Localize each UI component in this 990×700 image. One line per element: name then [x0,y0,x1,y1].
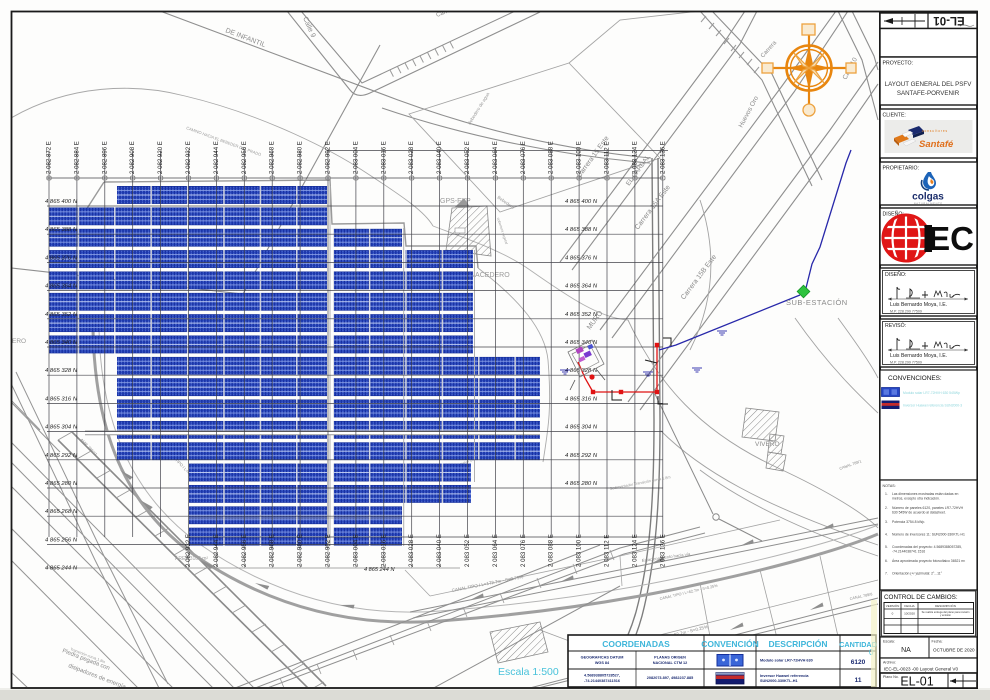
svg-text:2 082 920 E: 2 082 920 E [157,141,164,174]
svg-text:4 865 400 N: 4 865 400 N [565,199,598,205]
svg-text:WGS 84: WGS 84 [595,661,610,665]
svg-text:4.: 4. [885,533,888,537]
svg-text:2 082 992 E: 2 082 992 E [325,141,332,174]
svg-text:2 083 016 E: 2 083 016 E [380,141,387,174]
svg-text:2 083 100 E: 2 083 100 E [576,534,583,567]
svg-text:CONTROL DE CAMBIOS:: CONTROL DE CAMBIOS: [884,594,958,601]
svg-text:Fecha:: Fecha: [932,640,943,644]
svg-text:2 083 112 E: 2 083 112 E [604,142,611,174]
svg-text:metros, excepto otra indicació: metros, excepto otra indicación. [892,497,940,501]
svg-text:Escala 1:500: Escala 1:500 [498,666,559,678]
svg-text:2 083 112 E: 2 083 112 E [604,535,611,567]
svg-text:2082073.897, 4982237.885: 2082073.897, 4982237.885 [647,676,693,680]
svg-text:2 083 040 E: 2 083 040 E [436,141,443,174]
svg-text:DISEÑO:: DISEÑO: [885,271,906,278]
svg-text:4 865 268 N: 4 865 268 N [45,509,78,515]
svg-text:Número de inversores 11: SUN20: Número de inversores 11: SUN2000-330KTL-… [892,533,965,537]
svg-text:2 083 004 E: 2 083 004 E [352,534,359,567]
svg-text:2 083 028 E: 2 083 028 E [408,141,415,174]
svg-text:PLANAS ORIGEN: PLANAS ORIGEN [654,656,686,660]
svg-text:4 865 364 N: 4 865 364 N [565,284,598,290]
svg-text:Luis Bernardo Moya, I.E.: Luis Bernardo Moya, I.E. [890,353,947,359]
svg-text:2 083 016 E: 2 083 016 E [380,534,387,567]
svg-text:2 082 992 E: 2 082 992 E [325,534,332,567]
svg-text:2 083 064 E: 2 083 064 E [492,141,499,174]
svg-text:IEC-EL-0023 -00 Layout General: IEC-EL-0023 -00 Layout General V0 [884,667,958,672]
svg-text:Las dimensiones mostradas está: Las dimensiones mostradas están dadas en [892,492,958,496]
svg-text:4 865 280 N: 4 865 280 N [45,481,78,487]
svg-text:1.: 1. [885,492,888,496]
svg-text:GEOGRAFICAS DATUM: GEOGRAFICAS DATUM [581,656,624,660]
svg-text:PROPIETARIO:: PROPIETARIO: [883,166,920,172]
svg-text:3.: 3. [885,520,888,524]
svg-text:2 082 968 E: 2 082 968 E [269,534,276,567]
svg-text:4 865 292 N: 4 865 292 N [45,453,78,459]
svg-text:N A T U R A L M E N T E: N A T U R A L M E N T E [914,202,943,206]
svg-text:2 082 944 E: 2 082 944 E [213,534,220,567]
svg-text:DESCRIPCIÓN: DESCRIPCIÓN [935,603,956,608]
svg-text:2 082 980 E: 2 082 980 E [297,534,304,567]
svg-text:4 865 244 N: 4 865 244 N [45,566,78,572]
svg-text:Archivo:: Archivo: [883,661,896,665]
svg-text:LAYOUT GENERAL DEL PSFV: LAYOUT GENERAL DEL PSFV [885,81,973,88]
svg-text:4 865 244 N: 4 865 244 N [364,567,395,573]
svg-text:SUB-ESTACIÓN: SUB-ESTACIÓN [786,298,848,307]
svg-text:2 082 932 E: 2 082 932 E [185,141,192,174]
svg-text:4 865 328 N: 4 865 328 N [45,368,78,374]
svg-text:Santafé: Santafé [919,139,954,150]
svg-text:4 865 292 N: 4 865 292 N [565,453,598,459]
svg-text:2 083 040 E: 2 083 040 E [436,534,443,567]
svg-text:5.: 5. [885,545,888,549]
svg-text:SANTAFE-PORVENIR: SANTAFE-PORVENIR [897,90,960,97]
svg-text:Escala:: Escala: [883,640,895,644]
svg-text:OCTUBRE DE 2020: OCTUBRE DE 2020 [933,648,975,653]
svg-text:NA: NA [901,647,911,654]
svg-text:4 865 304 N: 4 865 304 N [45,425,78,431]
svg-text:c o n s u l t o r e s: c o n s u l t o r e s [922,129,948,133]
svg-text:2 083 028 E: 2 083 028 E [408,534,415,567]
svg-text:2 083 088 E: 2 083 088 E [548,141,555,174]
svg-text:y emisión: y emisión [940,613,952,617]
svg-text:2 082 956 E: 2 082 956 E [241,141,248,174]
svg-text:NACEDERO: NACEDERO [470,272,510,279]
svg-text:M.P. 228.299 77509: M.P. 228.299 77509 [890,310,922,314]
svg-text:4 865 352 N: 4 865 352 N [45,312,78,318]
svg-text:2.: 2. [885,506,888,510]
svg-text:4.568938805728527,: 4.568938805728527, [584,674,620,678]
svg-text:2 082 884 E: 2 082 884 E [73,141,80,174]
svg-text:EC: EC [928,220,974,257]
svg-text:2 083 076 E: 2 083 076 E [520,141,527,174]
svg-text:EL-01: EL-01 [933,14,965,26]
svg-text:2 083 136 E: 2 083 136 E [659,534,666,567]
svg-text:Número de paneles 6120, panele: Número de paneles 6120, paneles LR7-72HV… [892,506,964,510]
svg-text:2 083 064 E: 2 083 064 E [492,534,499,567]
svg-text:Modulo solar LR7-72HVH 630 545: Modulo solar LR7-72HVH 630 545Wp [903,391,960,395]
svg-text:4 865 352 N: 4 865 352 N [565,312,598,318]
svg-text:PROYECTO:: PROYECTO: [883,61,913,67]
svg-text:Plano No.: Plano No. [883,675,899,679]
svg-text:2 082 908 E: 2 082 908 E [129,141,136,174]
svg-text:4 865 388 N: 4 865 388 N [565,227,598,233]
svg-text:Inversor Huawei referencia: Inversor Huawei referencia [760,674,809,678]
svg-text:2 082 968 E: 2 082 968 E [269,141,276,174]
svg-text:NACIONAL CTM 12: NACIONAL CTM 12 [653,661,688,665]
svg-text:COORDENADAS: COORDENADAS [602,639,670,649]
svg-text:DESCRIPCIÓN: DESCRIPCIÓN [768,638,827,649]
svg-text:EL-01: EL-01 [900,675,933,689]
svg-text:2 083 052 E: 2 083 052 E [464,141,471,174]
svg-text:4 865 256 N: 4 865 256 N [45,537,78,543]
svg-text:4 865 316 N: 4 865 316 N [565,396,598,402]
svg-text:2 083 088 E: 2 083 088 E [548,534,555,567]
svg-text:Luis Bernardo Moya, I.E.: Luis Bernardo Moya, I.E. [890,302,947,308]
svg-text:6120: 6120 [851,659,866,666]
svg-text:SUN2000-330KTL-H1: SUN2000-330KTL-H1 [760,679,798,683]
svg-text:4 865 340 N: 4 865 340 N [45,340,78,346]
svg-text:REVISÓ:: REVISÓ: [885,322,906,329]
svg-text:colgas: colgas [912,192,944,203]
svg-text:ERO: ERO [12,338,26,345]
svg-text:10/2020: 10/2020 [904,612,915,616]
svg-text:2 083 136 E: 2 083 136 E [659,141,666,174]
svg-text:7.: 7. [885,572,888,576]
svg-text:M.P. 228.299 77509: M.P. 228.299 77509 [890,361,922,365]
svg-text:CLIENTE:: CLIENTE: [883,113,906,119]
svg-text:4 865 280 N: 4 865 280 N [565,481,598,487]
svg-text:2 083 052 E: 2 083 052 E [464,534,471,567]
svg-text:NOTAS:: NOTAS: [883,484,896,488]
svg-text:4 865 376 N: 4 865 376 N [565,255,598,261]
svg-text:2 082 896 E: 2 082 896 E [101,141,108,174]
svg-text:4 865 364 N: 4 865 364 N [45,284,78,290]
svg-text:Orientación (+/-)azimutal: 2°.: Orientación (+/-)azimutal: 2°...11° [892,572,943,576]
svg-text:4 865 304 N: 4 865 304 N [565,425,598,431]
svg-text:Inversor Huawei referencia SUN: Inversor Huawei referencia SUN2000-3 [903,404,962,408]
svg-text:4 865 400 N: 4 865 400 N [45,199,78,205]
svg-text:-74.2144038741 1516: -74.2144038741 1516 [892,550,925,554]
svg-text:Coordenadas del proyecto: 4.56: Coordenadas del proyecto: 4.568938805728… [892,545,962,549]
svg-text:2 083 100 E: 2 083 100 E [576,141,583,174]
svg-text:Área aproximada proyecto fotov: Área aproximada proyecto fotovoltaico 36… [892,559,966,563]
svg-text:2 082 956 E: 2 082 956 E [241,534,248,567]
svg-text:CONVENCIÓN: CONVENCIÓN [701,638,759,649]
svg-text:CONVENCIONES:: CONVENCIONES: [888,375,942,382]
svg-text:2 082 980 E: 2 082 980 E [297,141,304,174]
svg-text:-74.21440387411516: -74.21440387411516 [584,679,620,683]
svg-text:2 083 004 E: 2 083 004 E [352,141,359,174]
svg-text:Potencia 3754.8 kWp.: Potencia 3754.8 kWp. [892,520,925,524]
svg-text:2 083 124 E: 2 083 124 E [631,534,638,567]
svg-text:4 865 376 N: 4 865 376 N [45,255,78,261]
svg-text:2 082 944 E: 2 082 944 E [213,141,220,174]
svg-text:11: 11 [855,677,862,684]
svg-text:FECHA: FECHA [904,604,914,608]
svg-text:6.: 6. [885,559,888,563]
svg-text:4 865 388 N: 4 865 388 N [45,227,78,233]
svg-text:2 083 124 E: 2 083 124 E [631,141,638,174]
svg-text:4 865 316 N: 4 865 316 N [45,396,78,402]
svg-text:Modulo solar LR7-72HVH 630: Modulo solar LR7-72HVH 630 [760,659,813,663]
svg-text:2 082 872 E: 2 082 872 E [46,141,53,174]
svg-text:2 082 932 E: 2 082 932 E [185,534,192,567]
svg-text:630 545W de acuerdo al datashe: 630 545W de acuerdo al datasheet. [892,511,946,515]
svg-text:2 083 076 E: 2 083 076 E [520,534,527,567]
svg-text:VERSIÓN: VERSIÓN [886,603,900,608]
